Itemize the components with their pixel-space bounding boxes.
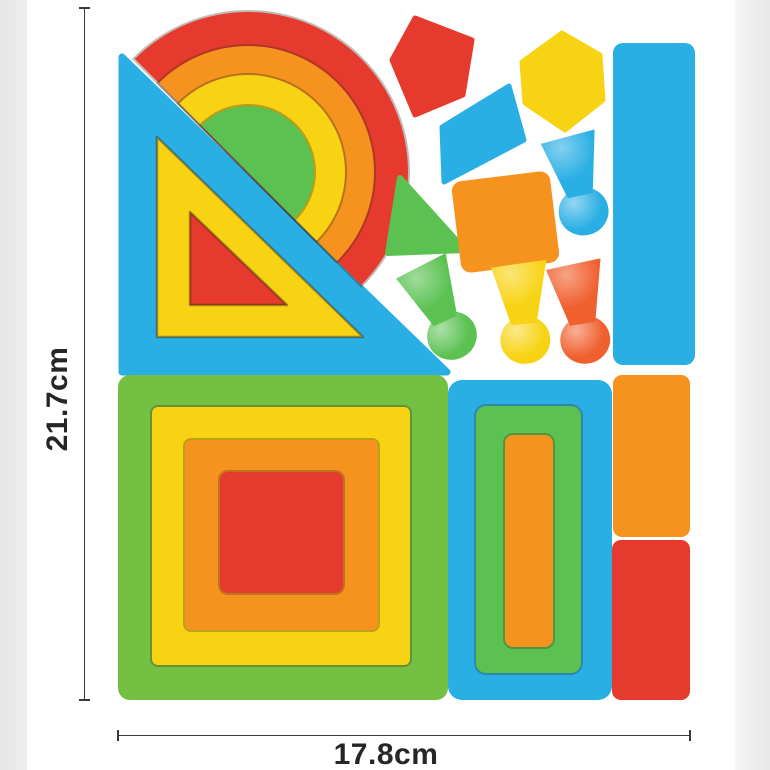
- hexagon-yellow: [518, 30, 606, 132]
- rectangle-orange: [505, 435, 553, 647]
- left-gutter-strip: [0, 0, 27, 770]
- right-gutter-strip: [735, 0, 770, 770]
- height-dimension-label: 21.7cm: [41, 321, 75, 477]
- peg-yellow-cup: [490, 260, 553, 327]
- width-dimension-label: 17.8cm: [286, 738, 486, 770]
- peg-orange-cup: [544, 258, 611, 328]
- diamond-blue: [438, 82, 528, 188]
- height-dimension-line: [84, 8, 85, 700]
- tilted-square-orange: [451, 170, 560, 273]
- small-bar-orange: [613, 375, 690, 537]
- tall-bar-blue: [613, 43, 695, 365]
- small-bar-red: [612, 540, 690, 700]
- product-photo: 21.7cm 17.8cm: [0, 0, 770, 770]
- square-red: [220, 472, 343, 593]
- width-dimension-line: [118, 735, 690, 736]
